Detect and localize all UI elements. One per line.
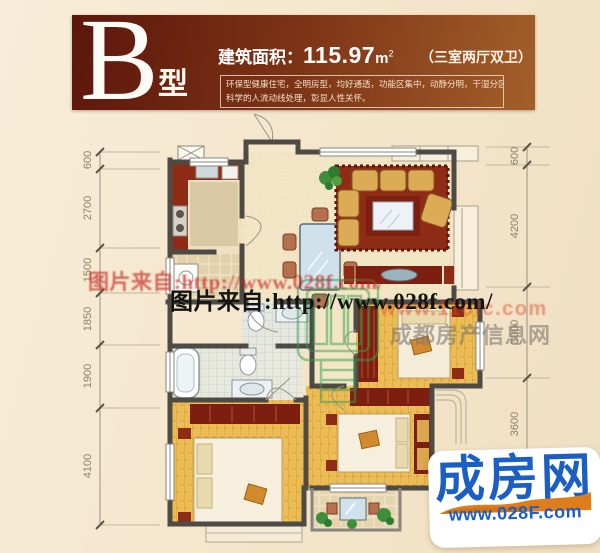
unit-type-suffix: 型 — [158, 59, 188, 103]
site-name-watermark: 成都房产信息网 — [390, 318, 551, 350]
dim-left-4100: 4100 — [82, 454, 94, 478]
dim-left-1900: 1900 — [82, 364, 94, 388]
dim-right-4200: 4200 — [509, 214, 521, 238]
logo-url: www.028F.com — [429, 501, 600, 526]
fridge — [222, 166, 238, 179]
dim-left-600: 600 — [82, 151, 94, 169]
description-line2: 科学的人流动线处理，彰显人性关怀。 — [226, 92, 498, 106]
floorplan-page: { "page": { "background": "#f4e6cf" }, "… — [0, 0, 600, 553]
description-line1: 环保型健康住宅，全明房型，均好通透，功能区集中，动静分明，干湿分区， — [226, 78, 498, 92]
dimension-lines-left: 600 2700 1500 1850 1900 4100 — [82, 148, 160, 529]
entry-door-swing — [254, 114, 273, 142]
description-box: 环保型健康住宅，全明房型，均好通透，功能区集中，动静分明，干湿分区， 科学的人流… — [220, 75, 504, 108]
kitchen-mat — [190, 182, 238, 246]
chengfangwang-logo: 成房网 www.028F.com — [428, 447, 600, 548]
header-banner: B 型 建筑面积：115.97m2 （三室两厅双卫） 环保型健康住宅，全明房型，… — [72, 15, 535, 110]
area-sup: 2 — [388, 49, 393, 59]
bedroom1 — [178, 404, 300, 523]
dim-right-600: 600 — [509, 147, 521, 165]
unit-type-letter: B — [80, 1, 159, 119]
area-value: 115.97 — [303, 42, 375, 68]
balcony-table — [340, 498, 366, 520]
bay-window-bottom-left — [206, 526, 302, 542]
photo-source-watermark-black: 图片来自:http://www.028f.com/ — [170, 282, 493, 316]
layout-label: （三室两厅双卫） — [420, 47, 532, 67]
area-unit: m — [375, 50, 388, 67]
dim-right-3600: 3600 — [509, 412, 521, 436]
dim-left-2700: 2700 — [82, 196, 94, 220]
toilet2 — [240, 355, 256, 375]
area-label: 建筑面积： — [218, 48, 303, 67]
kitchen-sink — [196, 166, 218, 178]
bay-window-right — [454, 206, 478, 290]
bedroom1-wardrobe — [190, 404, 300, 424]
site-corner-lines — [436, 390, 466, 444]
dim-left-1850: 1850 — [82, 307, 94, 331]
